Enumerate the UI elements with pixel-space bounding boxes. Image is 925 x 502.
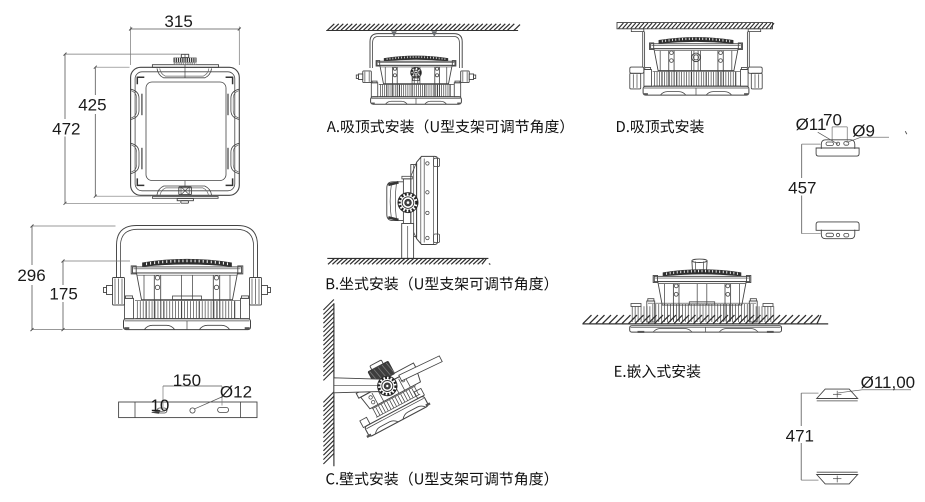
svg-text:175: 175: [49, 285, 77, 304]
svg-text:457: 457: [788, 179, 816, 198]
svg-text:296: 296: [17, 266, 45, 285]
svg-text:Ø12: Ø12: [220, 383, 252, 402]
svg-text:Ø11: Ø11: [796, 115, 827, 134]
svg-text:471: 471: [786, 427, 814, 446]
svg-text:472: 472: [52, 119, 80, 138]
svg-text:Ø11,00: Ø11,00: [861, 373, 916, 392]
svg-text:150: 150: [173, 371, 201, 390]
svg-text:315: 315: [164, 12, 192, 31]
svg-text:425: 425: [78, 96, 106, 115]
